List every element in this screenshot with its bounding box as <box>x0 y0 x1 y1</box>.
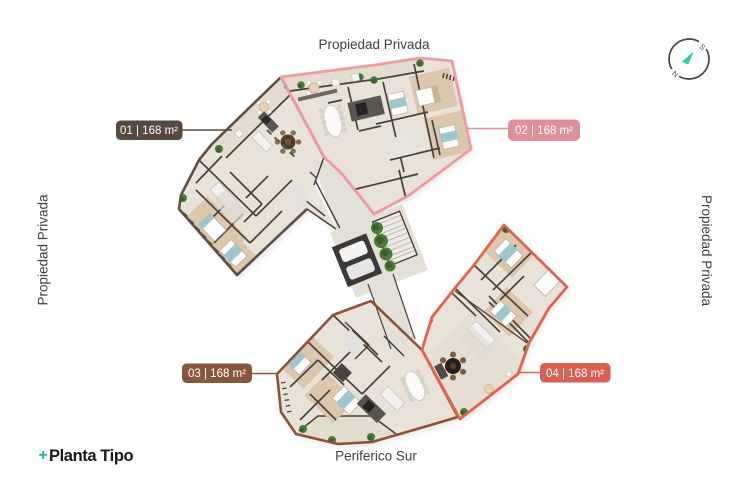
svg-text:Propiedad Privada: Propiedad Privada <box>36 194 51 306</box>
svg-text:Periferico Sur: Periferico Sur <box>335 449 417 464</box>
svg-text:+: + <box>39 447 48 464</box>
svg-text:N: N <box>670 69 680 79</box>
svg-text:Planta Tipo: Planta Tipo <box>49 447 134 465</box>
svg-text:02 | 168 m²: 02 | 168 m² <box>515 125 573 137</box>
svg-text:03 | 168 m²: 03 | 168 m² <box>188 368 246 380</box>
svg-text:Propiedad Privada: Propiedad Privada <box>699 195 714 307</box>
svg-text:01 | 168 m²: 01 | 168 m² <box>120 125 178 137</box>
svg-text:S: S <box>698 42 708 52</box>
svg-text:04 | 168 m²: 04 | 168 m² <box>546 368 604 380</box>
svg-text:Propiedad Privada: Propiedad Privada <box>318 37 430 52</box>
